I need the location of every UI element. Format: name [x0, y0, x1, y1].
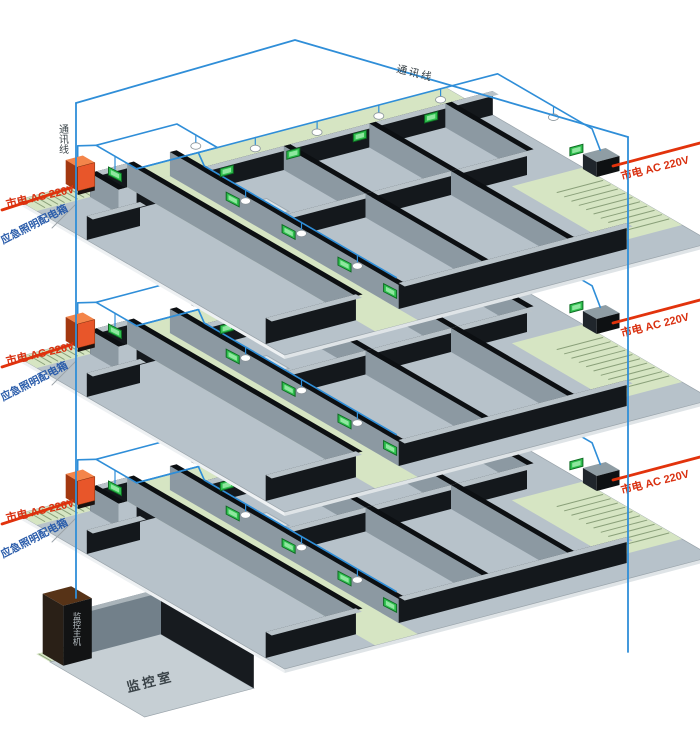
box-front	[78, 477, 95, 506]
right-labels: 市电 AC 220V	[613, 300, 700, 340]
diagram-stage: 监控室监控主机 市电 AC 220V应急照明配电箱市电 AC 220V市电 AC…	[0, 0, 700, 755]
box-front	[78, 320, 95, 349]
right-labels: 市电 AC 220V	[613, 143, 700, 183]
building-wiring-diagram: 监控室监控主机 市电 AC 220V应急照明配电箱市电 AC 220V市电 AC…	[0, 0, 700, 755]
comm-line-left-label: 通讯线	[57, 124, 69, 154]
ceiling-lamp-icon	[241, 198, 251, 205]
ceiling-lamp-icon	[191, 143, 201, 150]
ceiling-lamp-icon	[352, 577, 362, 584]
ceiling-lamp-icon	[374, 113, 384, 120]
mains-right-label: 市电 AC 220V	[619, 309, 691, 340]
ceiling-lamp-icon	[241, 355, 251, 362]
ceiling-lamp-icon	[436, 96, 446, 103]
right-labels: 市电 AC 220V	[613, 457, 700, 497]
cabinet-side	[43, 594, 64, 666]
ceiling-lamp-icon	[297, 230, 307, 237]
monitor-host-label: 监控主机	[72, 611, 82, 647]
ceiling-lamp-icon	[297, 544, 307, 551]
exit-sign-icon	[570, 144, 583, 155]
ceiling-lamp-icon	[352, 263, 362, 270]
exit-sign-icon	[570, 301, 583, 312]
comm-line-top-label: 通讯线	[395, 62, 435, 84]
monitor-host-cabinet: 监控主机	[43, 586, 92, 666]
ceiling-lamp-icon	[297, 387, 307, 394]
building-floors: 市电 AC 220V应急照明配电箱市电 AC 220V市电 AC 220V应急照…	[0, 74, 700, 673]
ceiling-lamp-icon	[250, 145, 260, 152]
box-front	[78, 163, 95, 192]
ceiling-lamp-icon	[241, 512, 251, 519]
mains-right-label: 市电 AC 220V	[619, 152, 691, 183]
ceiling-lamp-icon	[312, 129, 322, 136]
mains-right-label: 市电 AC 220V	[619, 466, 691, 497]
ceiling-lamp-icon	[352, 420, 362, 427]
exit-sign-icon	[570, 458, 583, 469]
